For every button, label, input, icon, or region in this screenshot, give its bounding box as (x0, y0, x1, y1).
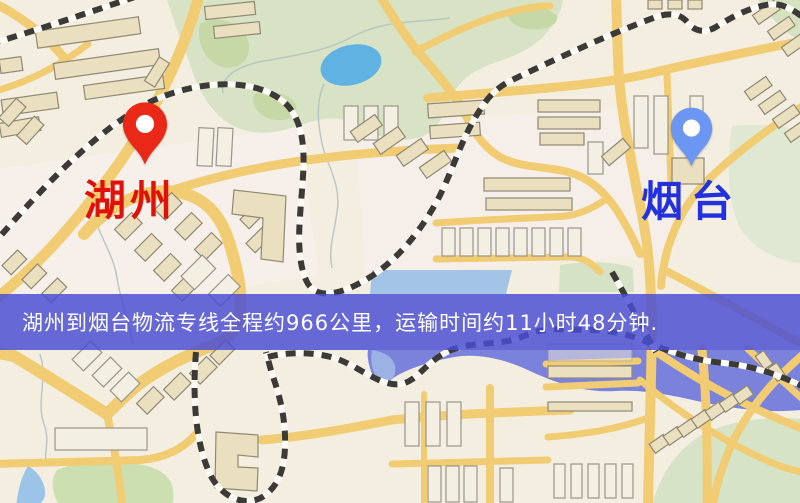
pond (16, 466, 45, 503)
map-screenshot: 湖州到烟台物流专线全程约966公里，运输时间约11小时48分钟. 湖州 烟台 (0, 0, 800, 503)
route-banner: 湖州到烟台物流专线全程约966公里，运输时间约11小时48分钟. (0, 294, 800, 350)
origin-label: 湖州 (84, 180, 176, 222)
destination-label: 烟台 (641, 181, 741, 223)
map-canvas (0, 0, 800, 503)
origin-pin-icon[interactable] (122, 100, 168, 168)
route-banner-text: 湖州到烟台物流专线全程约966公里，运输时间约11小时48分钟. (22, 307, 658, 337)
destination-pin-icon[interactable] (669, 106, 714, 169)
river-upper (370, 270, 512, 294)
